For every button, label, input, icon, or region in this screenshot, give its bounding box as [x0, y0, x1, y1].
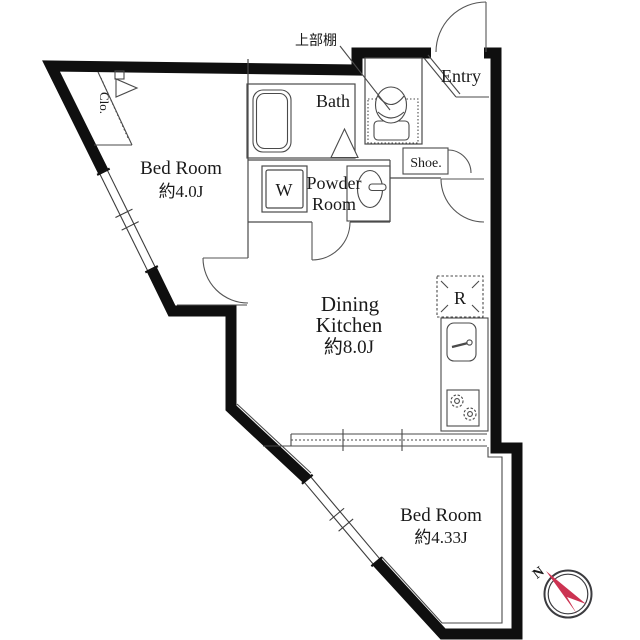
- bedroom1-label: Bed Room: [140, 158, 222, 179]
- closet-label: Clo.: [97, 92, 112, 114]
- entry-door-icon: [436, 2, 486, 52]
- kitchen-counter: [441, 318, 488, 431]
- powder-room-label-2: Room: [312, 194, 356, 214]
- compass-needle: [546, 571, 586, 614]
- bedroom2-size: 約4.33J: [414, 528, 468, 547]
- compass-icon: N: [530, 564, 591, 617]
- toilet-icon: [374, 87, 409, 140]
- window-bedroom2: [300, 473, 385, 569]
- dining-kitchen-label-2: Kitchen: [316, 313, 383, 337]
- bedroom2-label: Bed Room: [400, 505, 482, 526]
- sliding-partition: [263, 429, 487, 451]
- closet-door-icon: [116, 79, 137, 97]
- shoe-label: Shoe.: [410, 156, 442, 171]
- upper-shelf-label: 上部棚: [295, 33, 337, 49]
- dk-diagonal-inner-line: [237, 404, 311, 473]
- washer-label: W: [276, 180, 293, 200]
- refrigerator-label: R: [454, 288, 466, 308]
- bedroom1-size: 約4.0J: [159, 182, 204, 201]
- shoe-cabinet-arc: [448, 150, 471, 173]
- dining-kitchen-size: 約8.0J: [324, 336, 374, 358]
- window-gap: [98, 169, 157, 273]
- stove-icon: [447, 390, 479, 426]
- hall-door-icon: [441, 179, 484, 222]
- faucet-knob: [467, 340, 472, 345]
- bathtub-icon: [253, 90, 291, 152]
- powder-room-label-1: Powder: [307, 173, 362, 193]
- floor-plan: N Bed Room 約4.0J Dining Kitchen 約8.0J Be…: [0, 0, 640, 640]
- bedroom1-door-icon: [203, 258, 248, 303]
- toilet-room: [340, 46, 418, 143]
- compass-north-label: N: [530, 564, 547, 582]
- bath-label: Bath: [316, 91, 350, 111]
- powder-door-icon: [312, 222, 350, 260]
- bath-folding-door-icon: [331, 129, 358, 158]
- faucet-icon: [452, 343, 468, 347]
- entry-label: Entry: [441, 66, 481, 86]
- window-gap: [303, 475, 382, 566]
- window-bedroom1: [95, 167, 161, 274]
